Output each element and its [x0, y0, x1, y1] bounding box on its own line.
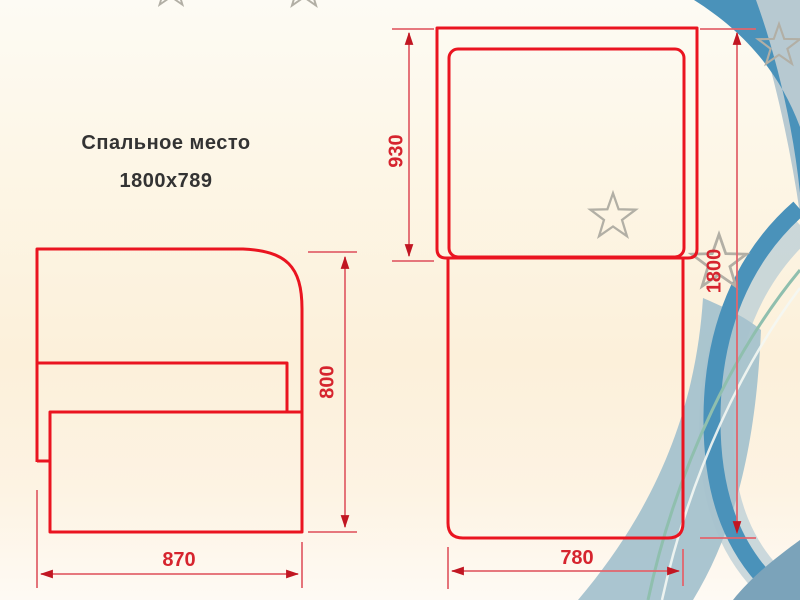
- top-width-label: 780: [560, 547, 593, 569]
- side-view-dimensions: [37, 252, 357, 588]
- top-length-label: 1800: [703, 249, 725, 294]
- sofa-side-base-step: [37, 461, 50, 532]
- sofa-top-lower-section: [448, 258, 683, 538]
- top-upper-label: 930: [385, 134, 407, 167]
- sofa-top-mattress: [449, 49, 684, 257]
- sofa-side-outline: [37, 249, 302, 531]
- title-block: Спальное место 1800x789: [40, 132, 292, 193]
- side-view-labels: 800 870: [162, 365, 338, 571]
- slide-canvas: 800 870 930 1800 780 Спальное м: [0, 0, 800, 600]
- sofa-side-backrest: [37, 363, 287, 413]
- sleeping-area-size: 1800x789: [40, 170, 292, 193]
- dimension-drawing: 800 870 930 1800 780: [0, 0, 800, 600]
- sofa-side-seat: [50, 412, 302, 532]
- side-height-label: 800: [316, 365, 338, 398]
- sofa-top-upper-section: [437, 28, 697, 258]
- sofa-top-view: [437, 28, 697, 538]
- sofa-side-view: [37, 249, 302, 532]
- side-width-label: 870: [162, 549, 195, 571]
- sleeping-area-title: Спальное место: [40, 132, 292, 155]
